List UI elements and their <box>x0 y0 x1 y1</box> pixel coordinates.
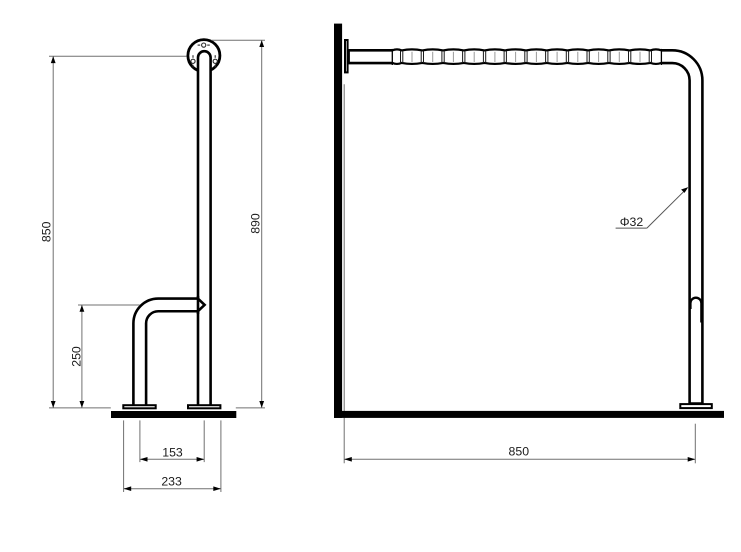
svg-text:233: 233 <box>161 475 182 489</box>
svg-text:250: 250 <box>69 346 83 367</box>
svg-text:850: 850 <box>39 221 53 242</box>
svg-text:890: 890 <box>249 213 263 234</box>
svg-text:Φ32: Φ32 <box>620 215 644 229</box>
svg-text:153: 153 <box>162 446 183 460</box>
svg-text:850: 850 <box>509 445 530 459</box>
